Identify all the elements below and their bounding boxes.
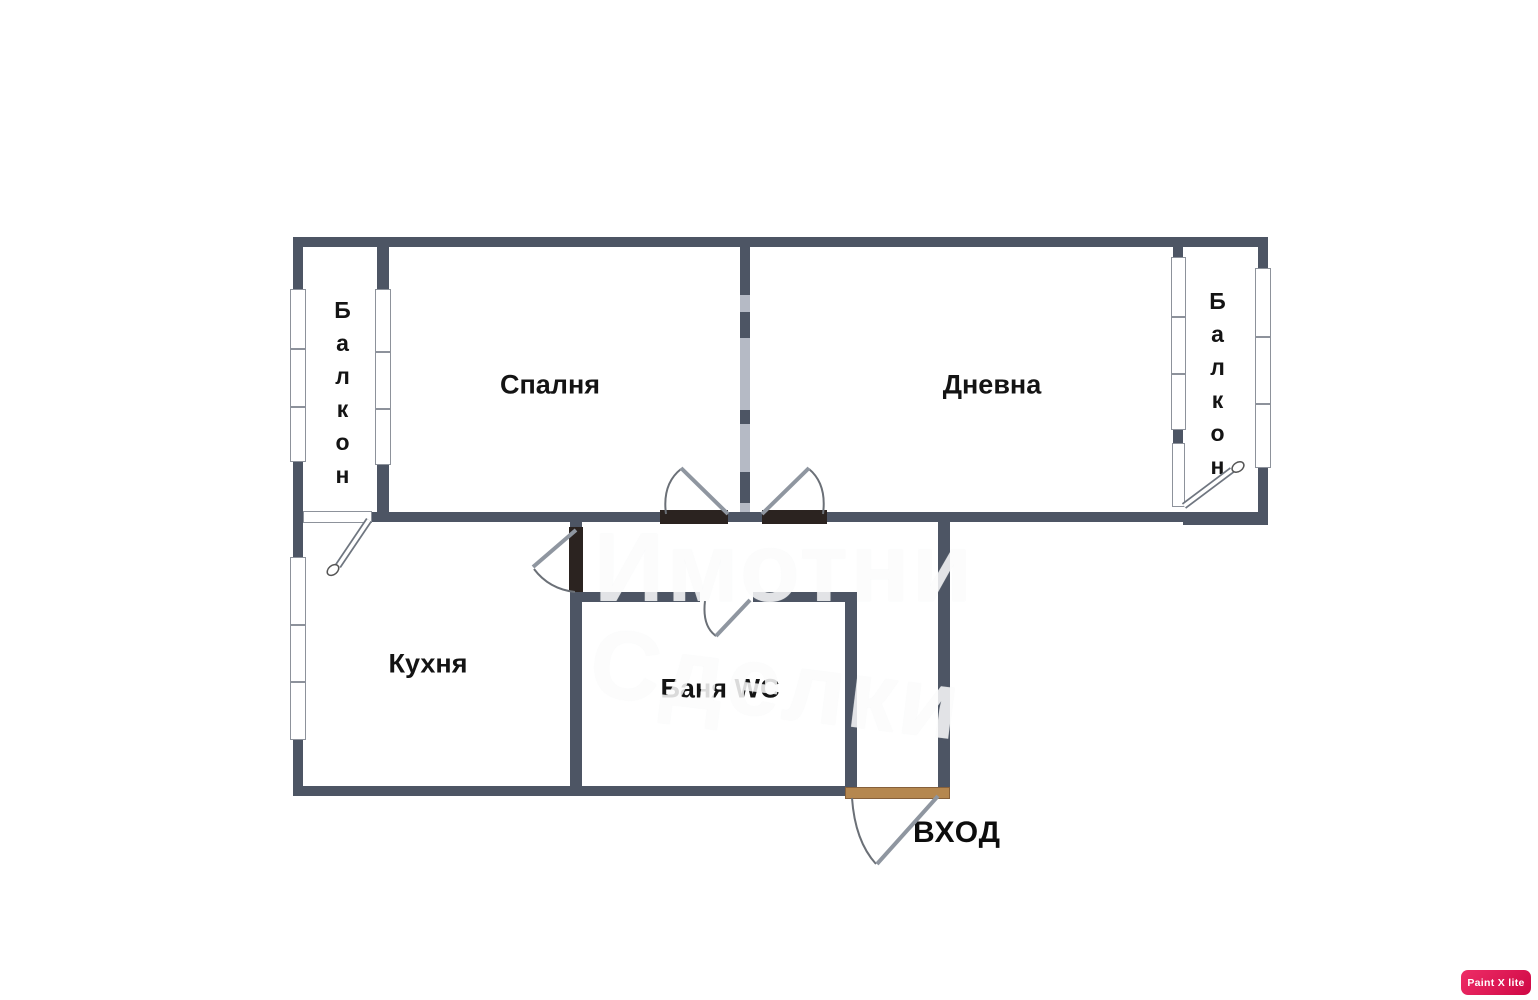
- bathroom-door-swing-icon: [704, 600, 750, 636]
- living-balcony-door-leaf-icon: [1184, 460, 1246, 506]
- paint-x-lite-badge: Paint X lite: [1461, 970, 1531, 995]
- entrance-door-swing-icon: [852, 796, 938, 864]
- floor-plan: Спалня Дневна Кухня Баня WC ВХОД Балкон …: [0, 0, 1538, 1000]
- bedroom-door-swing-icon: [665, 468, 728, 514]
- door-swing-layer: [0, 0, 1538, 1000]
- living-door-swing-icon: [762, 468, 824, 514]
- kitchen-balcony-door-leaf-icon: [325, 520, 369, 578]
- kitchen-door-swing-icon: [533, 530, 576, 592]
